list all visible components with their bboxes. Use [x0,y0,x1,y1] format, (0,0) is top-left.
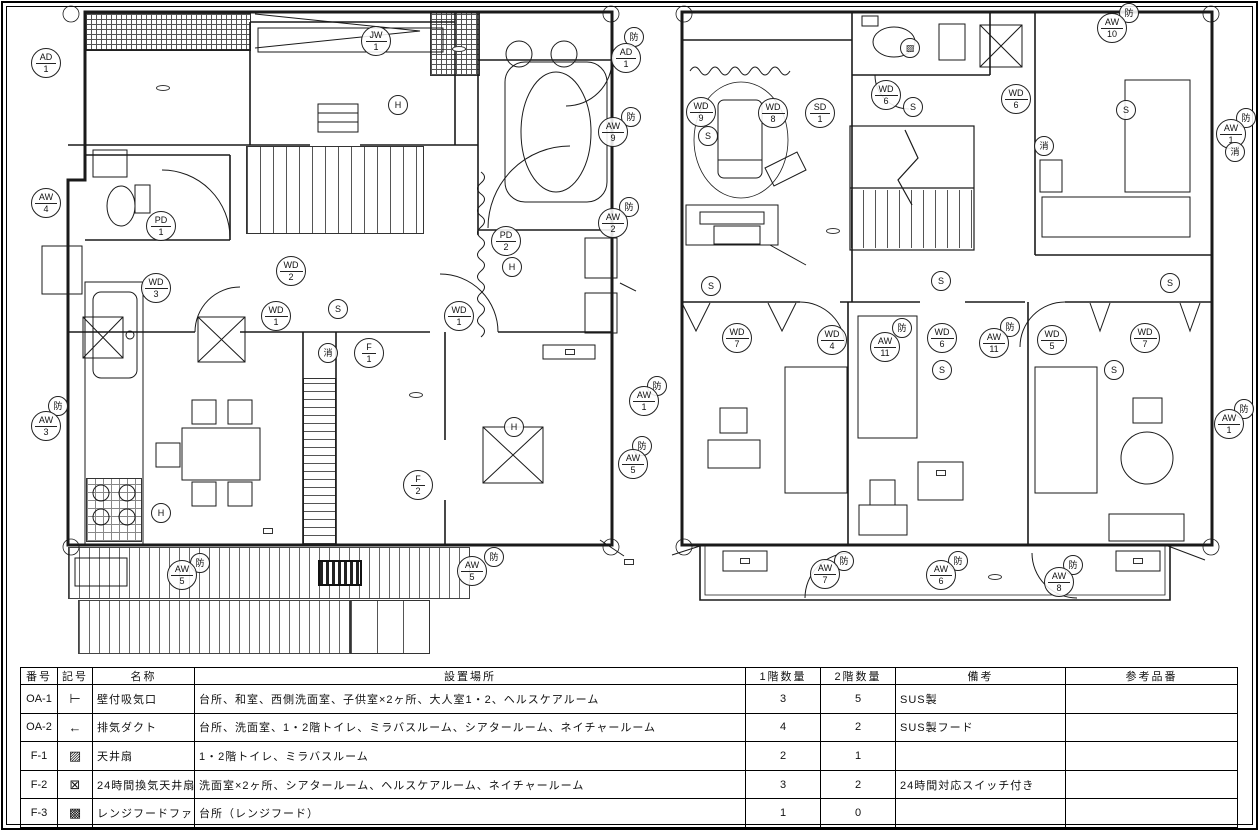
marker-top-text: AW [983,333,1005,344]
marker-top-text: S [939,366,945,375]
col-remarks: 備考 [896,668,1066,685]
marker-top-text: AW [35,416,57,427]
marker-bottom-text: 3 [43,427,48,437]
marker-bottom-text: 1 [641,402,646,412]
schedule-row: F-3 ▩ レンジフードファン 台所（レンジフード） 1 0 [21,799,1238,828]
plan-label [452,46,466,52]
plan-label [936,470,946,476]
marker-bottom-text: 9 [698,113,703,123]
symbol-marker: AW 8 [1044,567,1074,597]
col-ref-number: 参考品番 [1066,668,1238,685]
symbol-marker: WD 3 [141,273,171,303]
equipment-location: 台所、洗面室、1・2階トイレ、ミラバスルーム、シアタールーム、ネイチャールーム [195,713,746,742]
equipment-number: F-2 [21,770,58,799]
qty-2f: 5 [821,685,896,714]
marker-top-text: S [705,132,711,141]
marker-top-text: 防 [629,33,638,42]
marker-top-text: WD [690,102,713,113]
marker-top-text: AW [171,565,193,576]
symbol-marker: H [504,417,524,437]
marker-top-text: WD [931,328,954,339]
equipment-symbol-icon: ⊠ [58,770,93,799]
symbol-marker: WD 5 [1037,325,1067,355]
symbol-marker: PD 2 [491,226,521,256]
marker-bottom-text: 6 [938,576,943,586]
marker-top-text: SD [810,103,831,114]
col-number: 番号 [21,668,58,685]
qty-2f: 2 [821,713,896,742]
symbol-marker: WD 9 [686,97,716,127]
equipment-name: 24時間換気天井扇 [93,770,195,799]
marker-bottom-text: 7 [822,575,827,585]
marker-top-text: 防 [626,113,635,122]
plan-label [156,85,170,91]
symbol-marker: AW 1 [629,386,659,416]
symbol-marker: 消 [1034,136,1054,156]
symbol-marker: WD 1 [444,301,474,331]
equipment-remark [896,799,1066,828]
symbol-marker: WD 4 [817,325,847,355]
equipment-name: レンジフードファン [93,799,195,828]
symbol-marker: S [1160,273,1180,293]
marker-top-text: 消 [1039,142,1048,151]
ventilation-plan-sheet: { "floor1": { "labels": [ {"t":"玄関","x":… [0,0,1259,831]
marker-top-text: AW [930,565,952,576]
marker-top-text: H [158,509,165,518]
marker-top-text: WD [1041,330,1064,341]
marker-bottom-text: 4 [829,341,834,351]
schedule-table: 番号 記号 名称 設置場所 1階数量 2階数量 備考 参考品番 OA-1 ⊢ 壁… [20,667,1238,828]
marker-top-text: 防 [1241,114,1250,123]
equipment-location: 1・2階トイレ、ミラバスルーム [195,742,746,771]
marker-top-text: 防 [637,442,646,451]
symbol-marker: JW 1 [361,26,391,56]
marker-top-text: S [910,103,916,112]
plan-label [988,574,1002,580]
symbol-marker: AW 1 [1214,409,1244,439]
marker-top-text: S [1123,106,1129,115]
equipment-name: 天井扇 [93,742,195,771]
symbol-marker: AW 6 [926,560,956,590]
qty-1f: 2 [746,742,821,771]
marker-top-text: WD [1134,328,1157,339]
marker-top-text: WD [875,85,898,96]
marker-bottom-text: 5 [469,572,474,582]
equipment-symbol-icon: ▨ [58,742,93,771]
symbol-marker: AW 9 [598,117,628,147]
marker-bottom-text: 5 [179,576,184,586]
equipment-remark: SUS製 [896,685,1066,714]
symbol-marker: WD 1 [261,301,291,331]
marker-bottom-text: 1 [1226,425,1231,435]
equipment-symbol-icon: ▩ [58,799,93,828]
marker-top-text: 防 [953,557,962,566]
schedule-row: F-1 ▨ 天井扇 1・2階トイレ、ミラバスルーム 2 1 [21,742,1238,771]
marker-top-text: AW [1218,414,1240,425]
marker-bottom-text: 2 [288,272,293,282]
marker-top-text: 防 [1068,561,1077,570]
symbol-marker: S [932,360,952,380]
equipment-number: F-1 [21,742,58,771]
symbol-marker: H [502,257,522,277]
marker-bottom-text: 1 [273,317,278,327]
col-symbol: 記号 [58,668,93,685]
marker-bottom-text: 8 [1056,583,1061,593]
col-location: 設置場所 [195,668,746,685]
marker-bottom-text: 3 [153,289,158,299]
equipment-schedule-table: 番号 記号 名称 設置場所 1階数量 2階数量 備考 参考品番 OA-1 ⊢ 壁… [20,667,1238,828]
marker-top-text: AW [602,122,624,133]
marker-bottom-text: 9 [610,133,615,143]
symbol-marker: S [701,276,721,296]
plan-label [624,559,634,565]
plan-label [565,349,575,355]
equipment-number: OA-2 [21,713,58,742]
qty-2f: 2 [821,770,896,799]
equipment-ref [1066,685,1238,714]
marker-bottom-text: 1 [43,64,48,74]
symbol-marker: 防 [484,547,504,567]
marker-top-text: WD [145,278,168,289]
marker-bottom-text: 5 [1049,341,1054,351]
marker-top-text: WD [280,261,303,272]
symbol-marker: AW 5 [457,556,487,586]
qty-1f: 3 [746,685,821,714]
marker-top-text: 防 [53,402,62,411]
symbol-marker: H [388,95,408,115]
marker-top-text: WD [762,103,785,114]
symbol-marker: 消 [318,343,338,363]
marker-bottom-text: 1 [373,42,378,52]
equipment-location: 台所（レンジフード） [195,799,746,828]
qty-1f: 1 [746,799,821,828]
marker-top-text: 防 [839,557,848,566]
marker-bottom-text: 7 [734,339,739,349]
marker-top-text: WD [821,330,844,341]
schedule-body: OA-1 ⊢ 壁付吸気口 台所、和室、西側洗面室、子供室×2ヶ所、大人室1・2、… [21,685,1238,828]
symbol-marker: AW 7 [810,559,840,589]
marker-bottom-text: 1 [623,59,628,69]
symbol-marker: S [903,97,923,117]
plan-label [409,392,423,398]
col-name: 名称 [93,668,195,685]
equipment-symbol-icon: ⊢ [58,685,93,714]
symbol-marker: S [328,299,348,319]
marker-top-text: WD [1005,89,1028,100]
marker-top-text: AW [874,337,896,348]
marker-top-text: 防 [897,324,906,333]
schedule-header-row: 番号 記号 名称 設置場所 1階数量 2階数量 備考 参考品番 [21,668,1238,685]
marker-bottom-text: 2 [415,486,420,496]
qty-1f: 3 [746,770,821,799]
col-qty-2f: 2階数量 [821,668,896,685]
symbol-marker: WD 7 [1130,323,1160,353]
marker-bottom-text: 6 [883,96,888,106]
marker-bottom-text: 8 [770,114,775,124]
marker-top-text: PD [496,231,517,242]
symbol-marker: AW 2 [598,208,628,238]
equipment-location: 台所、和室、西側洗面室、子供室×2ヶ所、大人室1・2、ヘルスケアルーム [195,685,746,714]
marker-top-text: AW [814,564,836,575]
marker-bottom-text: 6 [939,339,944,349]
marker-top-text: AW [1220,124,1242,135]
equipment-remark [896,742,1066,771]
symbol-marker: WD 6 [1001,84,1031,114]
marker-top-text: AD [36,53,57,64]
symbol-marker: WD 6 [927,323,957,353]
equipment-name: 排気ダクト [93,713,195,742]
marker-top-text: 消 [1230,148,1239,157]
marker-bottom-text: 1 [366,354,371,364]
symbol-marker: WD 2 [276,256,306,286]
marker-top-text: AW [461,561,483,572]
marker-bottom-text: 7 [1142,339,1147,349]
marker-top-text: PD [151,216,172,227]
schedule-row: F-2 ⊠ 24時間換気天井扇 洗面室×2ヶ所、シアタールーム、ヘルスケアルーム… [21,770,1238,799]
marker-top-text: 防 [624,203,633,212]
marker-bottom-text: 6 [1013,100,1018,110]
marker-top-text: H [511,423,518,432]
symbol-marker: AW 5 [618,449,648,479]
marker-top-text: 防 [489,553,498,562]
marker-bottom-text: 11 [989,344,998,354]
marker-top-text: AD [616,48,637,59]
marker-top-text: WD [448,306,471,317]
marker-bottom-text: 2 [610,224,615,234]
symbol-marker: SD 1 [805,98,835,128]
marker-top-text: AW [1101,18,1123,29]
marker-top-text: S [1111,366,1117,375]
marker-top-text: AW [1048,572,1070,583]
symbol-marker: S [1116,100,1136,120]
marker-bottom-text: 5 [630,465,635,475]
symbol-marker: S [698,126,718,146]
marker-bottom-text: 1 [456,317,461,327]
equipment-symbol-icon: ← [58,713,93,742]
symbol-marker: AW 11 [870,332,900,362]
plan-label [263,528,273,534]
marker-top-text: WD [726,328,749,339]
qty-2f: 0 [821,799,896,828]
marker-top-text: S [708,282,714,291]
equipment-number: OA-1 [21,685,58,714]
plan-label [826,228,840,234]
symbol-marker: AW 4 [31,188,61,218]
symbol-marker: WD 6 [871,80,901,110]
symbol-marker: F 1 [354,338,384,368]
symbol-marker: H [151,503,171,523]
schedule-row: OA-1 ⊢ 壁付吸気口 台所、和室、西側洗面室、子供室×2ヶ所、大人室1・2、… [21,685,1238,714]
marker-bottom-text: 10 [1107,29,1117,39]
marker-top-text: AW [622,454,644,465]
marker-top-text: F [411,475,425,486]
marker-top-text: AW [602,213,624,224]
plan-label [1133,558,1143,564]
equipment-remark: 24時間対応スイッチ付き [896,770,1066,799]
marker-bottom-text: 1 [817,114,822,124]
symbol-marker: AW 11 [979,328,1009,358]
marker-top-text: 防 [1005,323,1014,332]
marker-top-text: 防 [1124,9,1133,18]
equipment-ref [1066,799,1238,828]
marker-top-text: 消 [323,349,332,358]
equipment-location: 洗面室×2ヶ所、シアタールーム、ヘルスケアルーム、ネイチャールーム [195,770,746,799]
equipment-ref [1066,770,1238,799]
symbol-marker: AD 1 [611,43,641,73]
marker-bottom-text: 4 [43,204,48,214]
marker-top-text: H [509,263,516,272]
symbol-marker: 消 [1225,142,1245,162]
schedule-row: OA-2 ← 排気ダクト 台所、洗面室、1・2階トイレ、ミラバスルーム、シアター… [21,713,1238,742]
symbol-marker: AW 10 [1097,13,1127,43]
marker-bottom-text: 11 [880,348,889,358]
equipment-name: 壁付吸気口 [93,685,195,714]
symbol-marker: WD 8 [758,98,788,128]
plan-label [740,558,750,564]
marker-top-text: AW [35,193,57,204]
equipment-ref [1066,713,1238,742]
marker-top-text: H [395,101,402,110]
equipment-number: F-3 [21,799,58,828]
symbol-marker: WD 7 [722,323,752,353]
marker-top-text: S [1167,279,1173,288]
symbol-marker: AD 1 [31,48,61,78]
symbol-marker: F 2 [403,470,433,500]
equipment-remark: SUS製フード [896,713,1066,742]
marker-top-text: 防 [195,559,204,568]
marker-top-text: WD [265,306,288,317]
marker-top-text: ▨ [906,44,915,53]
equipment-ref [1066,742,1238,771]
symbol-marker: AW 3 [31,411,61,441]
symbol-marker: S [931,271,951,291]
col-qty-1f: 1階数量 [746,668,821,685]
symbol-marker: PD 1 [146,211,176,241]
marker-bottom-text: 2 [503,242,508,252]
symbol-marker: AW 5 [167,560,197,590]
marker-top-text: F [362,343,376,354]
marker-top-text: S [335,305,341,314]
qty-2f: 1 [821,742,896,771]
marker-bottom-text: 1 [158,227,163,237]
marker-top-text: S [938,277,944,286]
symbol-marker: ▨ [900,38,920,58]
symbol-marker: S [1104,360,1124,380]
marker-top-text: AW [633,391,655,402]
marker-top-text: JW [366,31,387,42]
qty-1f: 4 [746,713,821,742]
marker-top-text: 防 [1239,405,1248,414]
